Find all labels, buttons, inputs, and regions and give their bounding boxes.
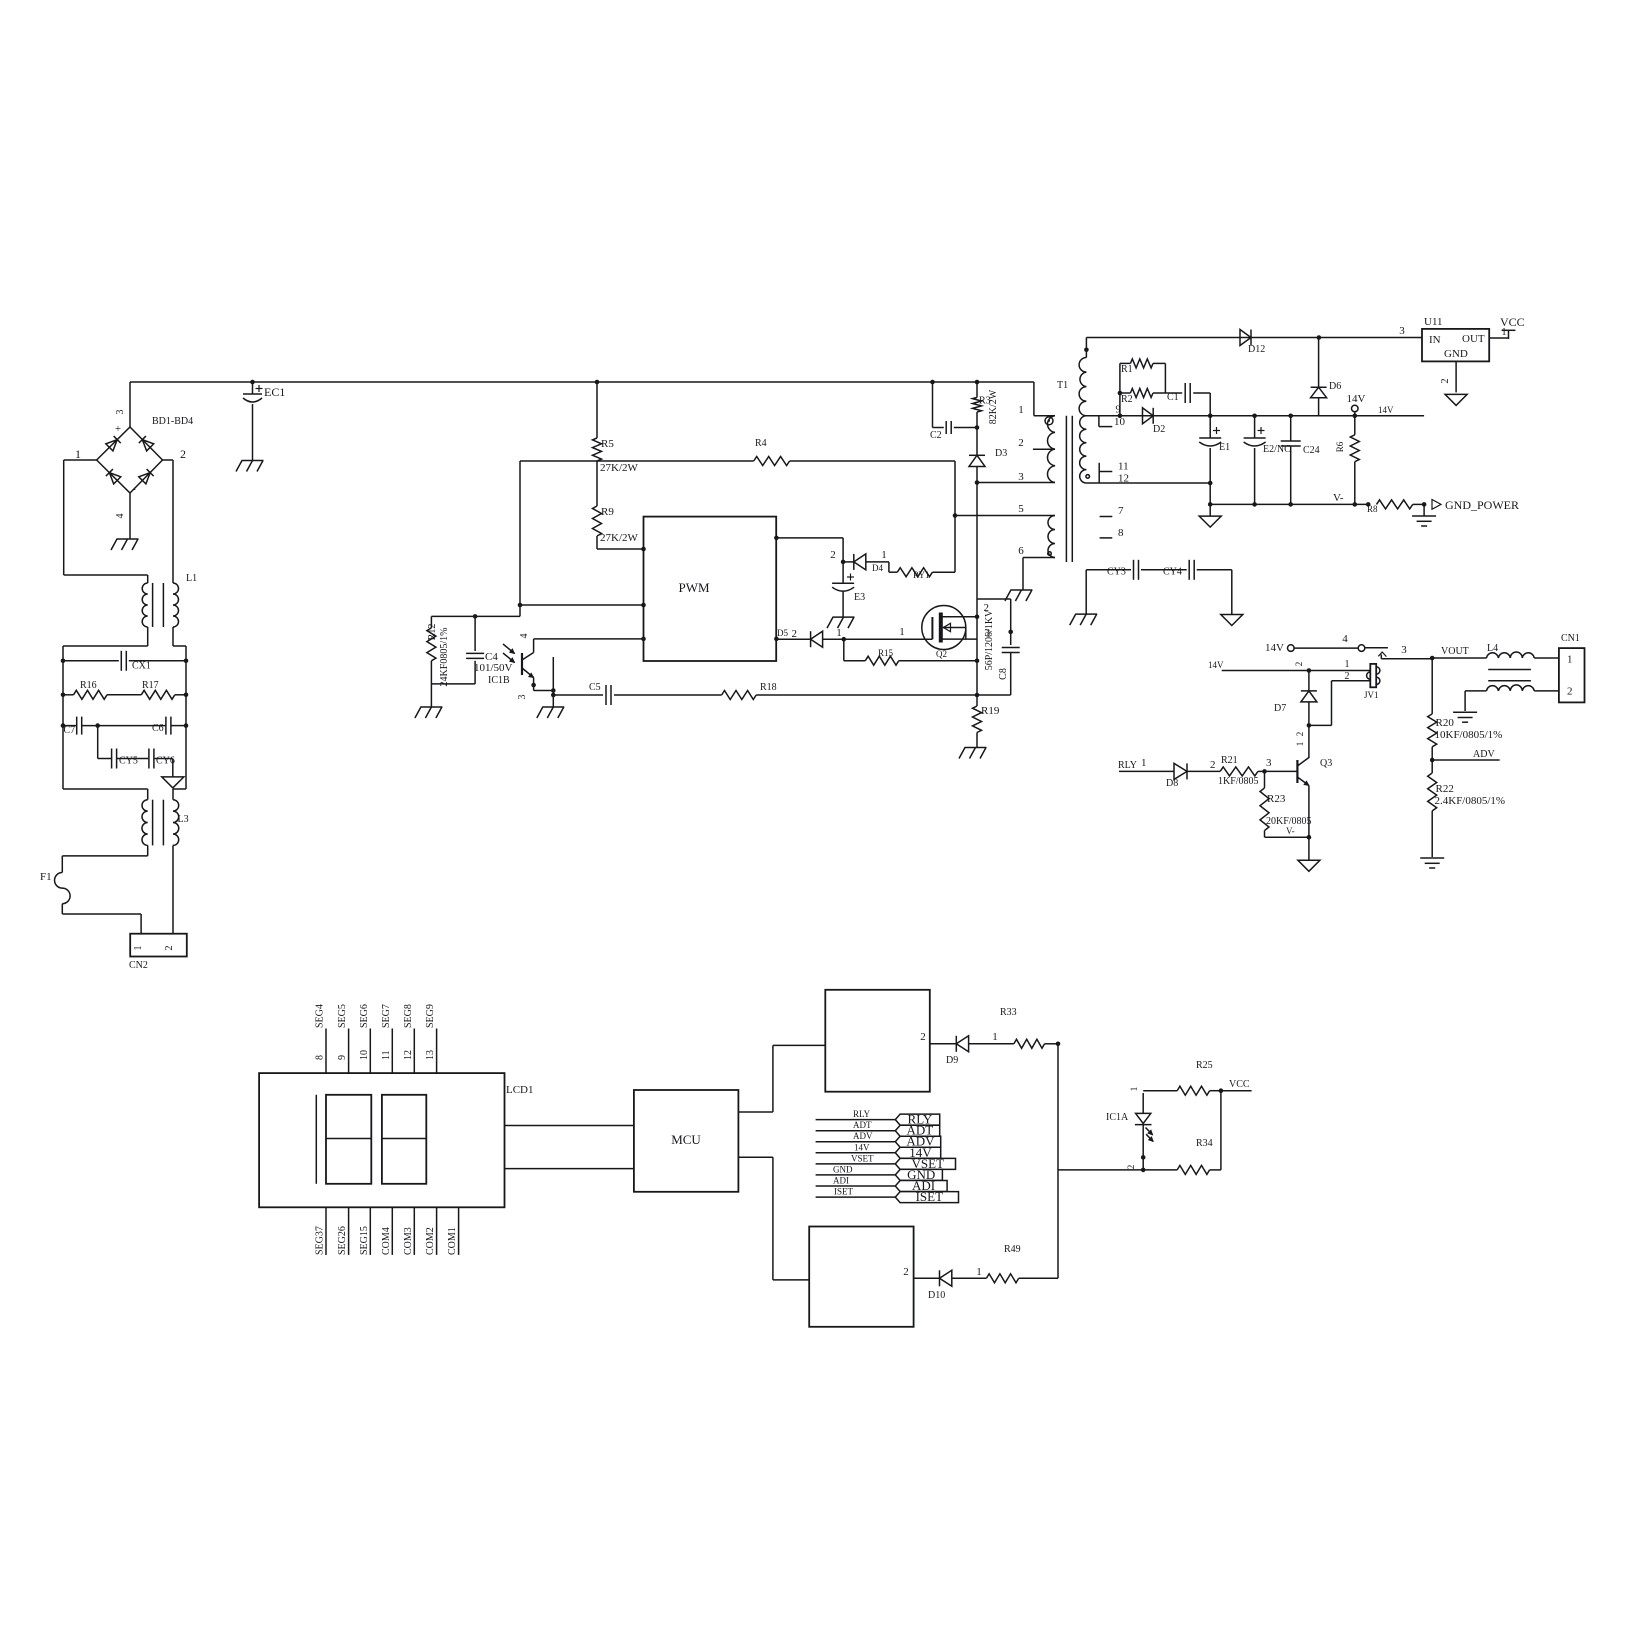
svg-text:R17: R17: [142, 680, 159, 691]
svg-text:L1: L1: [186, 573, 197, 584]
svg-text:R49: R49: [1004, 1244, 1021, 1255]
svg-text:V-: V-: [1286, 826, 1295, 836]
svg-text:1: 1: [133, 946, 144, 951]
svg-text:56P/1206/1KV: 56P/1206/1KV: [984, 609, 995, 670]
svg-text:3: 3: [517, 695, 528, 700]
svg-text:GND: GND: [833, 1164, 853, 1174]
svg-text:L3: L3: [178, 814, 189, 825]
svg-text:12: 12: [1118, 473, 1129, 485]
svg-text:MCU: MCU: [671, 1132, 701, 1147]
svg-text:2.4KF/0805/1%: 2.4KF/0805/1%: [1435, 795, 1506, 807]
svg-text:R1: R1: [1121, 364, 1133, 375]
svg-text:U11: U11: [1424, 316, 1443, 328]
svg-text:1: 1: [1567, 654, 1573, 666]
svg-text:CY4: CY4: [1163, 567, 1182, 578]
svg-text:27K/2W: 27K/2W: [600, 532, 639, 544]
svg-text:SEG7: SEG7: [381, 1004, 392, 1028]
svg-text:3: 3: [1399, 325, 1405, 337]
svg-text:JV1: JV1: [1364, 690, 1379, 700]
svg-text:RY1: RY1: [913, 570, 930, 580]
svg-text:1: 1: [1129, 1087, 1139, 1092]
svg-text:2: 2: [1295, 732, 1305, 737]
svg-text:R4: R4: [755, 438, 767, 449]
svg-text:OUT: OUT: [1462, 333, 1485, 345]
svg-text:3: 3: [1018, 471, 1024, 483]
svg-text:C24: C24: [1303, 445, 1320, 456]
svg-text:R23: R23: [1267, 793, 1286, 805]
svg-text:PWM: PWM: [678, 580, 710, 595]
svg-text:E3: E3: [854, 592, 865, 603]
svg-text:GND: GND: [1444, 348, 1468, 360]
svg-text:101/50V: 101/50V: [474, 662, 513, 674]
svg-text:1: 1: [992, 1031, 998, 1043]
svg-text:8: 8: [1118, 527, 1124, 539]
svg-text:L4: L4: [1487, 643, 1498, 654]
svg-text:ADV: ADV: [853, 1131, 873, 1141]
svg-text:RLY: RLY: [853, 1109, 871, 1119]
svg-text:R6: R6: [1335, 441, 1345, 452]
svg-text:IN: IN: [1429, 334, 1441, 346]
svg-text:D5: D5: [777, 628, 788, 638]
svg-text:R34: R34: [1196, 1138, 1213, 1149]
svg-text:14V: 14V: [854, 1142, 870, 1152]
svg-text:ISET: ISET: [834, 1187, 854, 1197]
svg-text:2: 2: [1440, 379, 1451, 384]
svg-text:1: 1: [899, 626, 905, 638]
svg-text:D3: D3: [995, 448, 1007, 459]
svg-text:D2: D2: [1153, 424, 1165, 435]
svg-text:VCC: VCC: [1500, 315, 1525, 329]
svg-text:V-: V-: [1333, 492, 1344, 504]
svg-text:COM2: COM2: [425, 1227, 436, 1255]
svg-text:VSET: VSET: [851, 1153, 874, 1163]
svg-text:C5: C5: [589, 682, 601, 693]
svg-text:2: 2: [1294, 662, 1304, 667]
svg-text:82K/2W: 82K/2W: [988, 389, 999, 424]
svg-text:Q3: Q3: [1320, 758, 1332, 769]
svg-text:10: 10: [359, 1050, 370, 1060]
svg-text:SEG26: SEG26: [337, 1226, 348, 1255]
svg-text:C6: C6: [152, 723, 164, 734]
svg-text:R20: R20: [1436, 717, 1455, 729]
svg-text:SEG5: SEG5: [337, 1004, 348, 1028]
svg-text:BD1-BD4: BD1-BD4: [152, 416, 193, 427]
svg-text:11: 11: [1118, 461, 1129, 473]
svg-text:11: 11: [381, 1050, 392, 1060]
svg-text:14V: 14V: [1378, 405, 1394, 415]
svg-text:2: 2: [903, 1266, 909, 1278]
svg-text:IC1A: IC1A: [1106, 1112, 1129, 1123]
svg-text:ISET: ISET: [916, 1189, 944, 1204]
svg-text:R33: R33: [1000, 1007, 1017, 1018]
svg-text:1: 1: [1141, 757, 1147, 769]
svg-text:COM1: COM1: [447, 1227, 458, 1255]
svg-text:D12: D12: [1248, 344, 1265, 355]
svg-text:ADV: ADV: [1473, 749, 1495, 760]
svg-text:D9: D9: [946, 1055, 958, 1066]
svg-text:GND_POWER: GND_POWER: [1445, 498, 1519, 512]
svg-text:D7: D7: [1274, 703, 1286, 714]
svg-text:VOUT: VOUT: [1441, 646, 1469, 657]
svg-text:C8: C8: [998, 668, 1009, 680]
svg-text:3: 3: [1266, 757, 1272, 769]
svg-text:CY6: CY6: [156, 756, 175, 767]
svg-text:F1: F1: [40, 871, 52, 883]
svg-text:27K/2W: 27K/2W: [600, 462, 639, 474]
svg-text:2: 2: [164, 946, 175, 951]
svg-text:R15: R15: [878, 648, 894, 658]
svg-text:3: 3: [115, 410, 126, 415]
svg-text:1: 1: [836, 627, 842, 639]
svg-text:2: 2: [1126, 1165, 1136, 1170]
svg-text:D8: D8: [1166, 778, 1178, 789]
svg-text:E1: E1: [1219, 442, 1230, 453]
svg-text:R16: R16: [80, 680, 97, 691]
svg-text:SEG9: SEG9: [425, 1004, 436, 1028]
svg-text:R18: R18: [760, 682, 777, 693]
svg-text:R5: R5: [601, 438, 614, 450]
svg-text:D6: D6: [1329, 381, 1341, 392]
svg-text:2: 2: [180, 447, 186, 461]
svg-text:1: 1: [1018, 404, 1024, 416]
svg-text:8: 8: [315, 1055, 326, 1060]
svg-text:SEG4: SEG4: [315, 1004, 326, 1028]
svg-text:CY5: CY5: [119, 756, 138, 767]
svg-text:13: 13: [425, 1050, 436, 1060]
svg-text:3: 3: [1401, 644, 1407, 656]
svg-text:2: 2: [830, 549, 836, 561]
svg-text:LCD1: LCD1: [506, 1084, 534, 1096]
svg-text:4: 4: [519, 634, 530, 639]
svg-text:COM3: COM3: [403, 1227, 414, 1255]
svg-text:1: 1: [1345, 659, 1350, 670]
svg-text:RLY: RLY: [1118, 760, 1137, 771]
svg-text:SEG37: SEG37: [315, 1226, 326, 1255]
svg-text:10KF/0805/1%: 10KF/0805/1%: [1435, 729, 1503, 741]
svg-text:ADT: ADT: [853, 1120, 872, 1130]
svg-text:1: 1: [75, 447, 81, 461]
svg-text:T1: T1: [1057, 380, 1068, 391]
svg-text:C2: C2: [930, 430, 942, 441]
svg-text:1: 1: [1295, 742, 1305, 747]
svg-text:5: 5: [1018, 503, 1024, 515]
svg-text:C7: C7: [64, 725, 76, 736]
svg-text:D4: D4: [872, 563, 883, 573]
svg-text:SEG15: SEG15: [359, 1226, 370, 1255]
svg-text:ADI: ADI: [833, 1176, 849, 1186]
svg-text:2: 2: [1567, 686, 1573, 698]
svg-text:CN2: CN2: [129, 960, 148, 971]
svg-text:CX1: CX1: [132, 661, 151, 672]
svg-text:R21: R21: [1221, 755, 1238, 766]
svg-text:R25: R25: [1196, 1060, 1213, 1071]
svg-text:CY3: CY3: [1107, 567, 1126, 578]
svg-text:2: 2: [1210, 759, 1216, 771]
svg-text:Q2: Q2: [936, 649, 947, 659]
svg-text:1: 1: [881, 549, 887, 561]
svg-text:CN1: CN1: [1561, 633, 1580, 644]
svg-text:IC1B: IC1B: [488, 675, 510, 686]
svg-text:VCC: VCC: [1229, 1079, 1250, 1090]
svg-text:-: -: [132, 484, 135, 495]
svg-text:R9: R9: [601, 506, 614, 518]
svg-text:1KF/0805: 1KF/0805: [1218, 776, 1259, 787]
svg-text:COM4: COM4: [381, 1227, 392, 1255]
svg-text:R22: R22: [1436, 783, 1454, 795]
svg-text:D10: D10: [928, 1290, 945, 1301]
svg-text:2: 2: [792, 628, 798, 640]
svg-text:9: 9: [337, 1055, 348, 1060]
svg-text:+: +: [115, 423, 121, 435]
svg-text:2: 2: [920, 1031, 926, 1043]
svg-text:SEG6: SEG6: [359, 1004, 370, 1028]
svg-text:C1: C1: [1167, 392, 1179, 403]
svg-text:7: 7: [1118, 505, 1124, 517]
svg-text:14V: 14V: [1208, 660, 1224, 670]
svg-text:R2: R2: [1121, 394, 1133, 405]
svg-text:SEG8: SEG8: [403, 1004, 414, 1028]
svg-text:4: 4: [115, 514, 126, 519]
svg-text:R12: R12: [427, 624, 438, 641]
svg-text:14V: 14V: [1347, 393, 1366, 405]
svg-text:1: 1: [976, 1266, 982, 1278]
svg-text:R19: R19: [981, 705, 1000, 717]
svg-text:12: 12: [403, 1050, 414, 1060]
svg-text:EC1: EC1: [264, 385, 285, 399]
svg-text:14V: 14V: [1265, 642, 1284, 654]
svg-text:4: 4: [1342, 633, 1348, 645]
svg-text:6: 6: [1018, 545, 1024, 557]
svg-text:24KF0805/1%: 24KF0805/1%: [439, 628, 450, 687]
svg-text:2: 2: [1018, 437, 1024, 449]
svg-text:R8: R8: [1367, 504, 1378, 514]
